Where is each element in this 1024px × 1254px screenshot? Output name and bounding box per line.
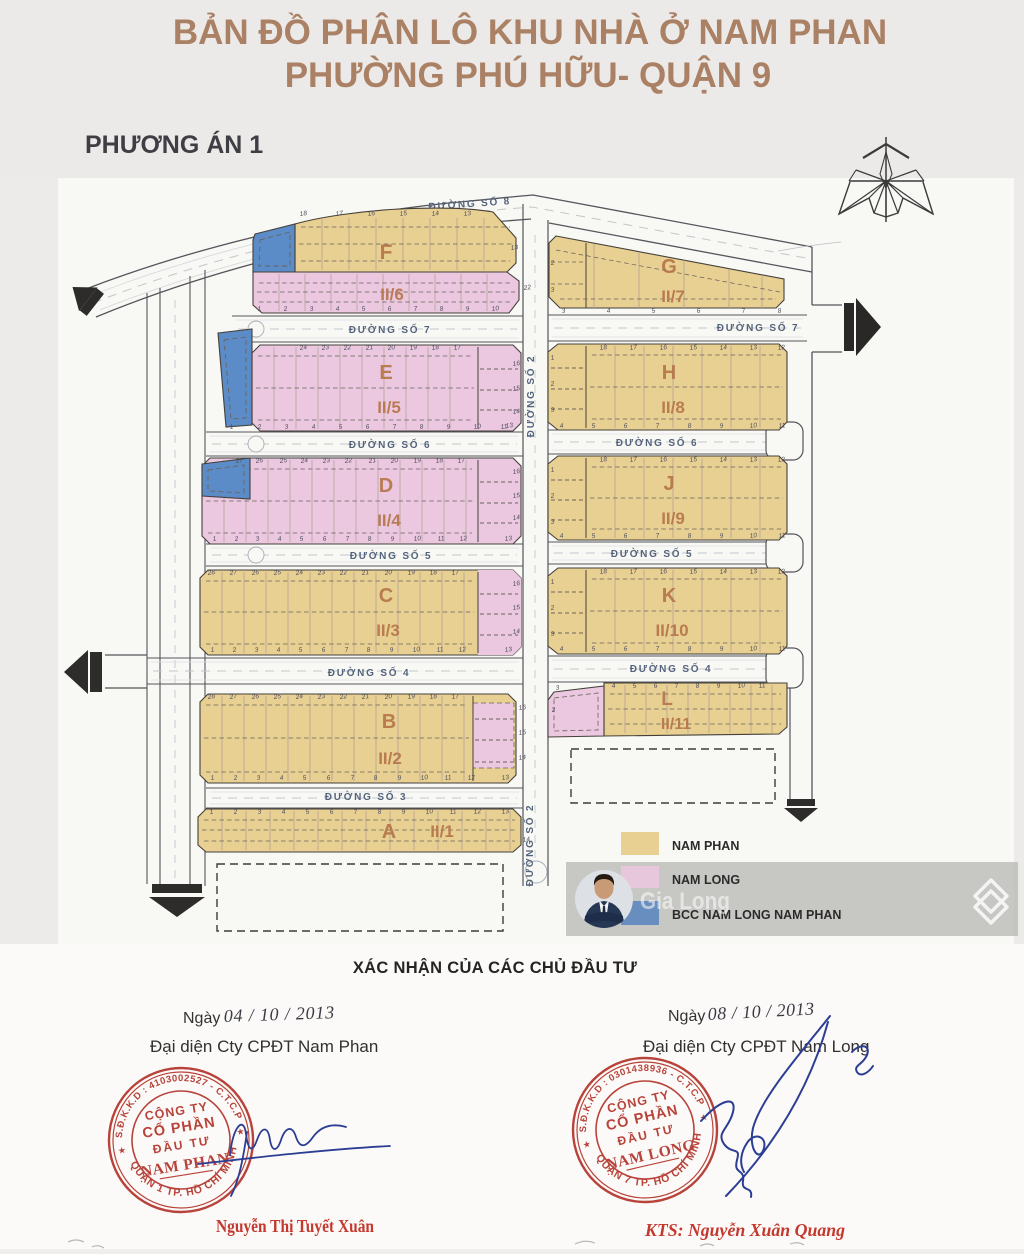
svg-text:11: 11 <box>778 645 786 653</box>
svg-text:L: L <box>661 689 673 710</box>
svg-text:12: 12 <box>467 774 476 782</box>
svg-text:16: 16 <box>512 360 521 368</box>
svg-text:18: 18 <box>435 457 444 465</box>
svg-text:ĐƯỜNG SỐ 7: ĐƯỜNG SỐ 7 <box>349 322 432 336</box>
svg-text:21: 21 <box>364 344 374 352</box>
svg-text:II/8: II/8 <box>661 398 685 417</box>
svg-text:10: 10 <box>420 774 429 782</box>
svg-text:13: 13 <box>504 535 513 543</box>
svg-text:XÁC NHẬN CỦA CÁC CHỦ ĐẦU TƯ: XÁC NHẬN CỦA CÁC CHỦ ĐẦU TƯ <box>353 958 637 977</box>
svg-text:20: 20 <box>389 457 399 465</box>
svg-text:12: 12 <box>473 808 482 816</box>
svg-text:26: 26 <box>254 457 264 465</box>
svg-text:20: 20 <box>383 569 393 577</box>
svg-text:NAM PHAN: NAM PHAN <box>672 839 739 853</box>
svg-text:12: 12 <box>777 568 786 576</box>
svg-text:ĐƯỜNG SỐ 7: ĐƯỜNG SỐ 7 <box>717 320 800 334</box>
svg-text:12: 12 <box>777 344 786 352</box>
svg-text:16: 16 <box>518 704 527 712</box>
svg-text:12: 12 <box>777 456 786 464</box>
svg-text:11: 11 <box>758 682 766 690</box>
svg-text:II/2: II/2 <box>378 749 402 768</box>
svg-text:Ngày: Ngày <box>668 1008 705 1025</box>
svg-text:14: 14 <box>719 456 728 464</box>
svg-text:II/7: II/7 <box>661 287 685 306</box>
svg-text:26: 26 <box>250 569 260 577</box>
svg-text:NAM LONG: NAM LONG <box>672 873 740 887</box>
svg-text:13: 13 <box>749 344 758 352</box>
svg-text:13: 13 <box>504 646 513 654</box>
svg-text:14: 14 <box>719 568 728 576</box>
svg-text:13: 13 <box>501 808 510 816</box>
svg-text:13: 13 <box>501 774 510 782</box>
svg-text:22: 22 <box>338 569 348 577</box>
svg-text:18: 18 <box>299 210 308 218</box>
svg-text:24: 24 <box>294 569 304 577</box>
svg-text:16: 16 <box>659 456 668 464</box>
svg-text:23: 23 <box>321 457 331 465</box>
svg-text:14: 14 <box>512 514 521 522</box>
svg-text:F: F <box>380 241 393 264</box>
svg-text:II/6: II/6 <box>380 285 404 304</box>
svg-text:17: 17 <box>457 457 466 465</box>
svg-text:14: 14 <box>512 628 521 636</box>
svg-text:ĐƯỜNG SỐ 5: ĐƯỜNG SỐ 5 <box>611 546 694 560</box>
svg-text:25: 25 <box>272 569 282 577</box>
svg-text:21: 21 <box>360 569 370 577</box>
svg-text:18: 18 <box>599 456 608 464</box>
svg-text:23: 23 <box>316 693 326 701</box>
svg-text:13: 13 <box>749 568 758 576</box>
svg-text:24: 24 <box>294 693 304 701</box>
svg-text:22: 22 <box>343 457 353 465</box>
svg-text:15: 15 <box>512 604 521 612</box>
svg-text:28: 28 <box>206 693 216 701</box>
svg-text:15: 15 <box>689 344 698 352</box>
svg-text:J: J <box>663 473 674 495</box>
svg-text:ĐƯỜNG SỐ 6: ĐƯỜNG SỐ 6 <box>349 437 432 451</box>
svg-text:18: 18 <box>429 693 438 701</box>
svg-text:13: 13 <box>463 210 472 218</box>
svg-text:17: 17 <box>453 344 462 352</box>
svg-text:16: 16 <box>659 344 668 352</box>
svg-text:27: 27 <box>228 569 238 577</box>
svg-text:20: 20 <box>383 693 393 701</box>
svg-text:12: 12 <box>459 535 468 543</box>
svg-text:19: 19 <box>407 569 416 577</box>
svg-text:22: 22 <box>522 284 532 292</box>
svg-text:15: 15 <box>399 210 408 218</box>
svg-text:23: 23 <box>316 569 326 577</box>
svg-text:16: 16 <box>512 580 521 588</box>
svg-text:II/3: II/3 <box>376 621 400 640</box>
svg-text:Đại diện Cty CPĐT Nam Phan: Đại diện Cty CPĐT Nam Phan <box>150 1037 378 1056</box>
svg-text:10: 10 <box>749 422 758 430</box>
svg-text:ĐƯỜNG SỐ 2: ĐƯỜNG SỐ 2 <box>523 355 537 438</box>
svg-text:10: 10 <box>749 645 758 653</box>
svg-text:13: 13 <box>505 422 514 430</box>
svg-text:19: 19 <box>413 457 422 465</box>
svg-text:18: 18 <box>429 569 438 577</box>
svg-text:27: 27 <box>234 457 244 465</box>
svg-text:Ngày: Ngày <box>183 1010 220 1027</box>
svg-text:ĐƯỜNG SỐ 4: ĐƯỜNG SỐ 4 <box>328 665 411 679</box>
svg-text:PHƯỜNG PHÚ HỮU- QUẬN 9: PHƯỜNG PHÚ HỮU- QUẬN 9 <box>285 55 772 95</box>
svg-text:17: 17 <box>629 344 638 352</box>
svg-text:14: 14 <box>719 344 728 352</box>
svg-text:10: 10 <box>413 535 422 543</box>
svg-text:K: K <box>662 585 677 607</box>
svg-text:D: D <box>379 475 393 497</box>
svg-text:10: 10 <box>749 532 758 540</box>
svg-text:II/5: II/5 <box>377 398 401 417</box>
svg-text:22: 22 <box>338 693 348 701</box>
svg-text:PHƯƠNG ÁN 1: PHƯƠNG ÁN 1 <box>85 130 263 159</box>
svg-text:14: 14 <box>518 754 527 762</box>
svg-text:16: 16 <box>367 210 376 218</box>
svg-text:15: 15 <box>689 456 698 464</box>
svg-text:21: 21 <box>367 457 377 465</box>
svg-text:II/10: II/10 <box>655 621 688 640</box>
svg-text:12: 12 <box>458 646 467 654</box>
svg-text:ĐƯỜNG SỐ 6: ĐƯỜNG SỐ 6 <box>616 435 699 449</box>
svg-text:04 / 10 / 2013: 04 / 10 / 2013 <box>223 1002 335 1026</box>
svg-text:II/4: II/4 <box>377 511 401 530</box>
svg-text:15: 15 <box>689 568 698 576</box>
svg-text:21: 21 <box>360 693 370 701</box>
svg-text:14: 14 <box>522 836 531 844</box>
svg-text:18: 18 <box>599 344 608 352</box>
svg-text:10: 10 <box>425 808 434 816</box>
svg-text:25: 25 <box>278 457 288 465</box>
svg-text:17: 17 <box>451 693 460 701</box>
svg-text:14: 14 <box>431 210 440 218</box>
svg-text:26: 26 <box>250 693 260 701</box>
svg-text:15: 15 <box>512 385 521 393</box>
svg-text:28: 28 <box>206 569 216 577</box>
svg-text:25: 25 <box>272 693 282 701</box>
svg-text:11: 11 <box>449 808 457 816</box>
svg-text:11: 11 <box>444 774 452 782</box>
svg-text:Đại diện Cty CPĐT Nam Long: Đại diện Cty CPĐT Nam Long <box>643 1037 869 1056</box>
svg-text:G: G <box>661 256 677 278</box>
svg-text:E: E <box>379 362 392 384</box>
svg-text:22: 22 <box>342 344 352 352</box>
svg-text:ĐƯỜNG SỐ 4: ĐƯỜNG SỐ 4 <box>630 661 713 675</box>
svg-text:11: 11 <box>778 422 786 430</box>
svg-text:24: 24 <box>298 344 308 352</box>
svg-text:13: 13 <box>749 456 758 464</box>
svg-text:11: 11 <box>436 646 444 654</box>
svg-text:24: 24 <box>299 457 309 465</box>
svg-text:10: 10 <box>473 423 482 431</box>
svg-text:17: 17 <box>335 210 344 218</box>
svg-text:17: 17 <box>629 456 638 464</box>
svg-text:18: 18 <box>599 568 608 576</box>
svg-text:Nguyễn Thị Tuyết Xuân: Nguyễn Thị Tuyết Xuân <box>216 1216 374 1236</box>
svg-text:17: 17 <box>451 569 460 577</box>
svg-text:11: 11 <box>437 535 445 543</box>
svg-text:10: 10 <box>737 682 746 690</box>
svg-text:H: H <box>662 362 676 384</box>
svg-text:19: 19 <box>409 344 418 352</box>
svg-text:11: 11 <box>778 532 786 540</box>
svg-text:10: 10 <box>491 305 500 313</box>
svg-text:KTS: Nguyễn Xuân Quang: KTS: Nguyễn Xuân Quang <box>644 1220 845 1240</box>
svg-text:ĐƯỜNG SỐ 3: ĐƯỜNG SỐ 3 <box>325 789 408 803</box>
svg-text:A: A <box>382 821 396 843</box>
svg-text:ĐƯỜNG SỐ 2: ĐƯỜNG SỐ 2 <box>522 804 536 887</box>
svg-text:27: 27 <box>228 693 238 701</box>
svg-text:15: 15 <box>518 729 527 737</box>
svg-text:16: 16 <box>659 568 668 576</box>
svg-text:Gia Long: Gia Long <box>640 888 730 915</box>
svg-text:II/1: II/1 <box>430 822 454 841</box>
svg-text:II/9: II/9 <box>661 509 685 528</box>
svg-text:BẢN ĐỒ PHÂN LÔ KHU NHÀ Ở NAM P: BẢN ĐỒ PHÂN LÔ KHU NHÀ Ở NAM PHAN <box>173 12 887 52</box>
svg-text:14: 14 <box>512 408 521 416</box>
svg-text:19: 19 <box>407 693 416 701</box>
svg-text:13: 13 <box>510 244 519 252</box>
svg-text:16: 16 <box>512 468 521 476</box>
svg-text:ĐƯỜNG SỐ 5: ĐƯỜNG SỐ 5 <box>350 548 433 562</box>
svg-text:18: 18 <box>431 344 440 352</box>
svg-text:20: 20 <box>386 344 396 352</box>
svg-text:II/11: II/11 <box>661 716 691 733</box>
svg-text:23: 23 <box>320 344 330 352</box>
svg-text:17: 17 <box>629 568 638 576</box>
svg-text:★: ★ <box>117 1145 127 1156</box>
svg-text:10: 10 <box>412 646 421 654</box>
svg-text:B: B <box>382 711 396 733</box>
svg-text:C: C <box>379 585 393 607</box>
svg-text:15: 15 <box>512 492 521 500</box>
